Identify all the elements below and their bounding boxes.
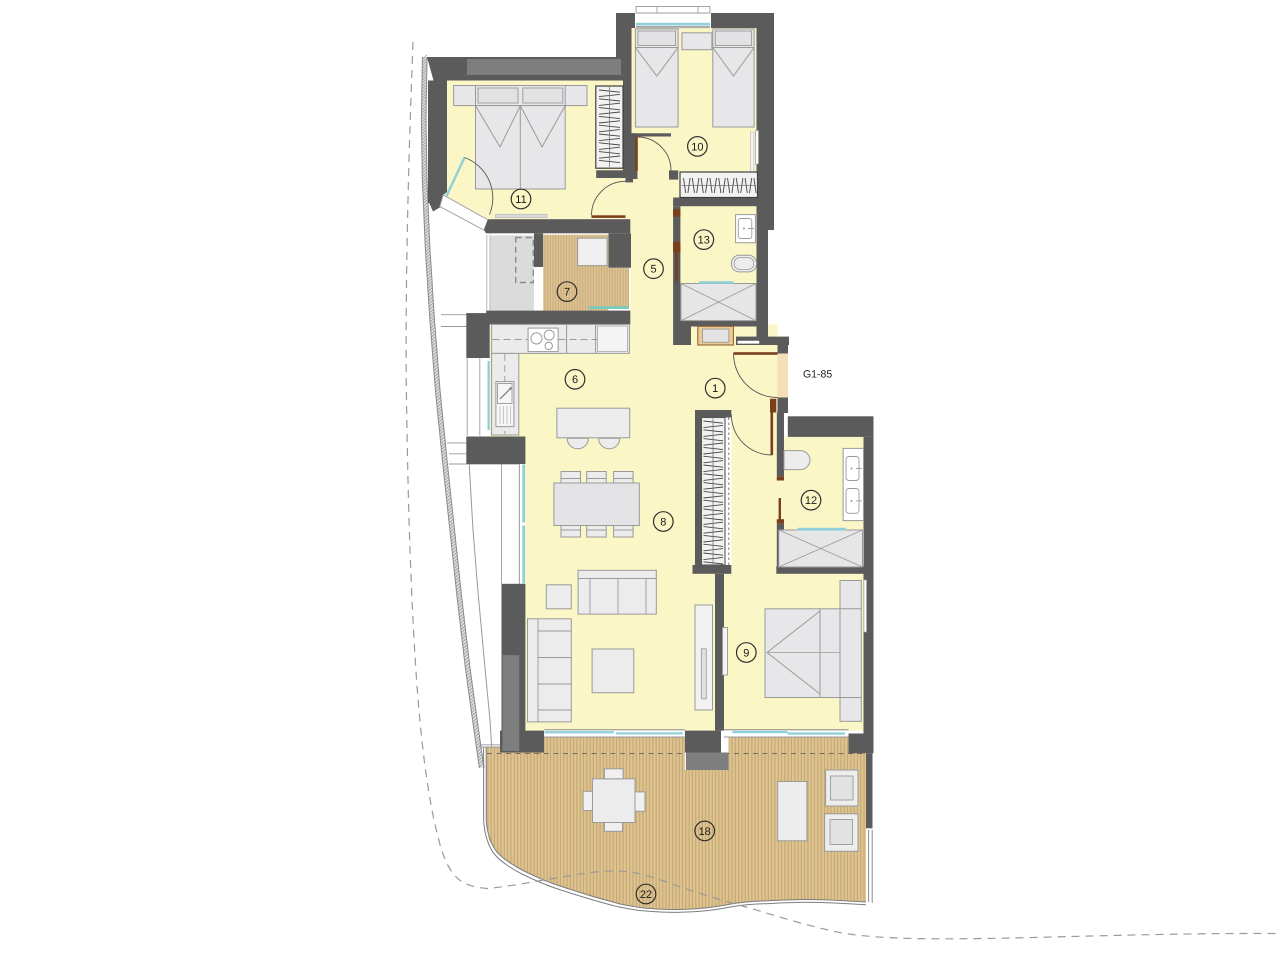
svg-text:11: 11: [515, 194, 526, 206]
svg-text:13: 13: [698, 235, 710, 247]
svg-text:6: 6: [572, 374, 578, 386]
svg-text:8: 8: [660, 516, 666, 528]
svg-text:9: 9: [743, 647, 749, 659]
svg-text:22: 22: [640, 889, 652, 901]
svg-text:1: 1: [712, 383, 718, 395]
svg-text:18: 18: [699, 826, 711, 838]
svg-text:12: 12: [805, 495, 817, 507]
svg-text:10: 10: [691, 141, 703, 153]
svg-text:7: 7: [564, 287, 570, 299]
svg-text:G1-85: G1-85: [803, 368, 832, 380]
svg-text:5: 5: [650, 264, 656, 276]
